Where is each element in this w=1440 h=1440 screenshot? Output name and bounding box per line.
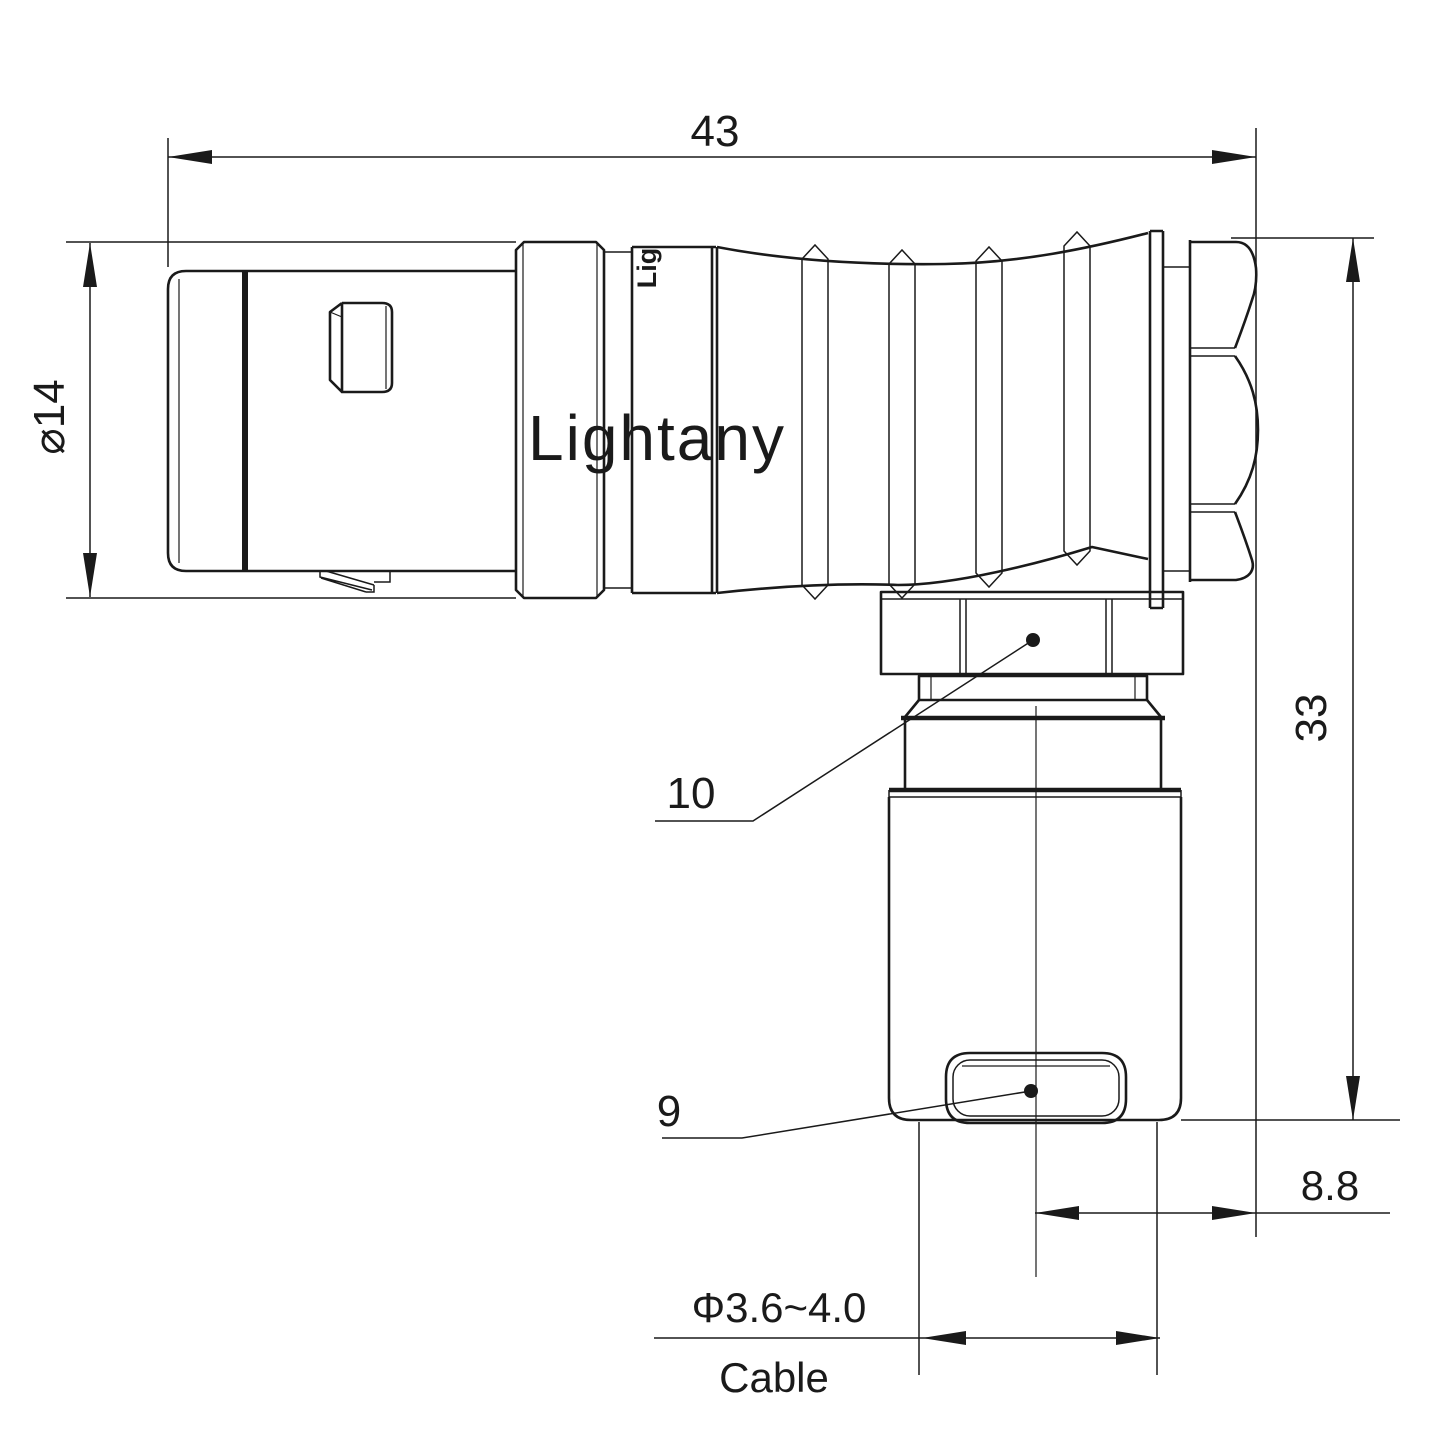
dim-overall-height-value: 33 <box>1287 694 1336 743</box>
dim-rear-to-cable-axis-value: 8.8 <box>1301 1162 1359 1209</box>
rear-nut <box>1163 240 1258 582</box>
callout-cable-entry-number: 9 <box>657 1087 681 1136</box>
knurl-band <box>802 245 828 599</box>
strain-relief <box>889 700 1181 797</box>
dim-front-diameter: ⌀14 <box>25 242 516 598</box>
watermark-text: Lightany <box>528 402 786 474</box>
dim-overall-height: 33 <box>1181 238 1400 1120</box>
arrowhead-right-icon <box>1212 150 1256 164</box>
callout-dot <box>1026 633 1040 647</box>
arrowhead-down-icon <box>1346 1076 1360 1120</box>
plug-front-shell <box>168 271 516 592</box>
arrowhead-up-icon <box>83 243 97 287</box>
arrowhead-right-icon <box>1212 1206 1256 1220</box>
elbow-coupling-nut <box>881 592 1183 674</box>
front-shell-ring <box>242 271 248 571</box>
connector-drawing-svg: Lightany Lig <box>0 0 1440 1440</box>
arrowhead-left-icon <box>922 1331 966 1345</box>
arrowhead-down-icon <box>83 553 97 597</box>
arrowhead-right-icon <box>1116 1331 1160 1345</box>
callout-coupling-nut-number: 10 <box>667 769 716 818</box>
dim-front-diameter-value: ⌀14 <box>25 379 74 454</box>
knurl-band <box>1064 232 1090 565</box>
callout-coupling-nut: 10 <box>655 633 1040 821</box>
dim-cable-diameter: Φ3.6~4.0 Cable <box>654 1122 1160 1401</box>
technical-drawing-page: Lightany Lig <box>0 0 1440 1440</box>
dim-rear-to-cable-axis: 8.8 <box>1035 1162 1390 1220</box>
callout-cable-entry: 9 <box>657 1084 1038 1138</box>
dim-cable-label: Cable <box>719 1354 829 1401</box>
dim-overall-length-value: 43 <box>691 107 740 156</box>
callout-dot <box>1024 1084 1038 1098</box>
barrel-engraving-text: Lig <box>632 248 662 289</box>
knurl-band <box>889 250 915 598</box>
latch-button <box>330 303 392 392</box>
arrowhead-left-icon <box>1035 1206 1079 1220</box>
dim-cable-diameter-value: Φ3.6~4.0 <box>692 1284 867 1331</box>
arrowhead-left-icon <box>168 150 212 164</box>
knurl-band <box>976 247 1002 587</box>
elbow-washer <box>919 676 1147 700</box>
arrowhead-up-icon <box>1346 238 1360 282</box>
latch-spring-wedge <box>320 571 390 592</box>
